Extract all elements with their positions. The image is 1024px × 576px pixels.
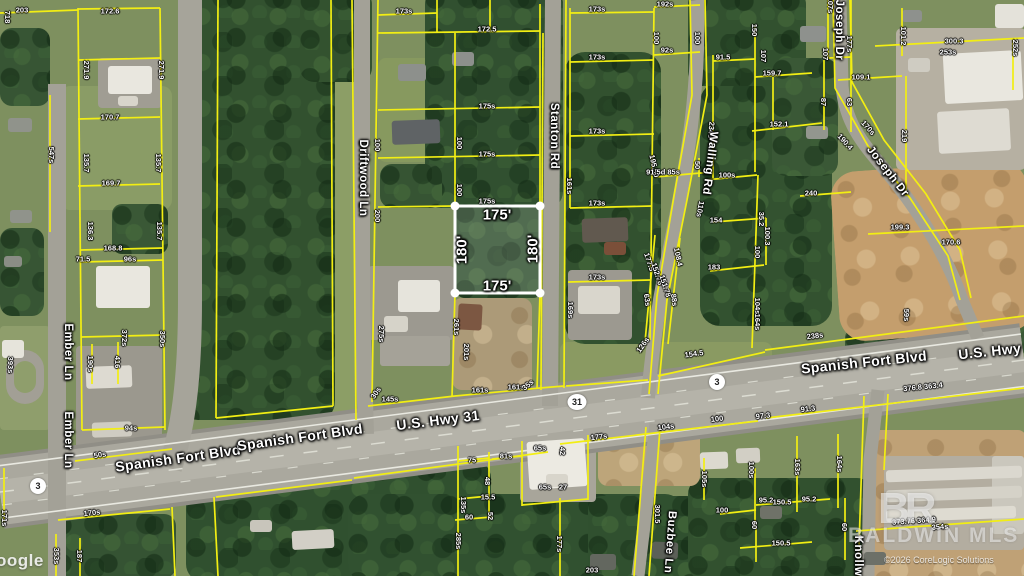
dimension-label: 100s [719,171,736,179]
dimension-label: 154 [710,216,723,224]
subject-parcel-dimension-label: 175' [483,279,512,294]
dimension-label: 173s [396,7,413,15]
dimension-label: 105s [700,471,708,488]
highway-shield: 3 [709,374,725,390]
dimension-label: 100s [747,462,755,479]
dimension-label: 159.7 [763,69,782,77]
dimension-label: 192s [657,0,674,8]
dimension-label: 15.5 [481,493,496,501]
dimension-label: 145s [382,395,399,403]
dimension-label: 104s [753,298,761,315]
dimension-label: 173s [589,199,606,207]
dimension-label: 177s [590,432,607,441]
dimension-label: 100 [753,246,761,259]
road-label: U.S. Hwy 31 [958,339,1024,362]
dimension-label: 100 [716,506,729,514]
highway-shield: 31 [568,394,587,410]
dimension-label: 547s [47,147,55,164]
road-label: Spanish Fort Blvd [236,421,363,452]
dimension-label: 100 [373,139,381,152]
dimension-label: 376.8 363.4 [903,381,943,393]
dimension-label: 350s [158,331,166,348]
dimension-label: 63 [845,98,853,106]
dimension-label: 203 [586,566,599,574]
dimension-label: 169.7 [102,179,121,187]
dimension-label: 353s [52,548,60,565]
dimension-label: 173s [589,273,606,281]
dimension-label: 150 [750,24,758,37]
dimension-label: 96s [124,255,137,263]
dimension-label: 91.3 [800,404,815,413]
dimension-label: 240 [805,189,818,197]
dimension-label: 172.5 [478,25,497,33]
dimension-label: 261s [452,319,460,336]
dimension-label: 63s [642,293,651,306]
dimension-label: 50s [93,450,106,459]
dimension-label: 81s [500,452,513,460]
dimension-label: 27 [559,483,567,491]
dimension-label: 300.3 [945,37,964,45]
dimension-label: 135s [459,497,467,514]
dimension-label: 271.9 [157,61,165,80]
dimension-label: 88s [669,293,678,306]
dimension-label: 91.5d 85s [646,168,680,176]
dimension-label: 187 [75,550,83,563]
labels-layer: 203718172.6271.9271.9170.7135.7135.7169.… [0,0,1024,576]
dimension-label: 65s [539,483,552,491]
dimension-label: 253s [940,48,957,56]
dimension-label: 164s [753,314,761,331]
subject-parcel-dimension-label: 180' [526,235,541,264]
dimension-label: 175s [479,197,496,205]
dimension-label: 100 [455,137,463,150]
dimension-label: 170.7 [101,113,120,121]
dimension-label: 136.3 [86,222,94,241]
dimension-label: 109.1 [852,73,871,81]
street-label: Stanton Rd [547,103,559,169]
dimension-label: 173s [589,53,606,61]
dimension-label: 126s [635,336,651,354]
dimension-label: 203 [16,6,29,14]
dimension-label: 171s [0,510,8,527]
dimension-label: 100 [710,415,723,424]
dimension-label: 150.5 [773,498,792,506]
dimension-label: 152.1 [770,120,789,128]
dimension-label: 169s [566,302,574,319]
dimension-label: 95.2 [802,495,817,503]
dimension-label: 718 [3,11,11,24]
dimension-label: 135.7 [155,222,163,241]
dimension-label: 177s [845,36,853,53]
dimension-label: 135.7 [82,154,90,173]
dimension-label: 94s [125,424,138,432]
dimension-label: 107 [821,48,829,61]
dimension-label: 154.5 [684,349,704,359]
dimension-label: 372s [120,330,128,347]
road-label: U.S. Hwy 31 [396,408,481,432]
street-label: Ember Ln [61,323,73,380]
dimension-label: 183 [708,263,721,271]
dimension-label: 175s [479,102,496,110]
dimension-label: 48 [483,477,491,485]
dimension-label: 87 [819,98,827,106]
street-label: Walling Rd [699,131,718,196]
dimension-label: 135.7 [154,154,162,173]
dimension-label: 108.4 [672,247,683,267]
dimension-label: 354s [931,523,948,532]
dimension-label: 75 [468,456,476,464]
dimension-label: 271.9 [82,61,90,80]
subject-parcel-dimension-label: 175' [483,208,512,223]
dimension-label: 170s [83,508,100,517]
dimension-label: 161s [472,386,489,394]
dimension-label: 285s [454,533,462,550]
dimension-label: 163s [793,459,801,476]
street-label: Driftwood Ln [356,140,368,217]
street-label: Buzbee Ln [661,510,677,573]
dimension-label: 172.6 [101,7,120,15]
dimension-label: 190s [86,356,94,373]
dimension-label: 100 [455,184,463,197]
dimension-label: 164s [835,456,843,473]
street-label: Joseph Dr [864,145,910,200]
dimension-label: 201s [462,344,470,361]
subject-parcel-dimension-label: 180' [455,236,470,265]
dimension-label: 59s [902,309,910,322]
street-label: Joseph Dr [832,0,844,60]
dimension-label: 65s [534,444,547,452]
dimension-label: 301.5 [653,505,661,524]
dimension-label: 416 [113,356,121,369]
dimension-label: 104s [657,422,674,431]
dimension-label: 200 [373,210,381,223]
dimension-label: 168.8 [104,244,123,252]
dimension-label: 150.5 [772,539,791,547]
dimension-label: 60 [750,521,758,529]
dimension-label: 101.2 [899,27,907,46]
dimension-label: 52 [486,512,494,520]
dimension-label: 170.6 [942,238,961,246]
dimension-label: 50 [693,161,701,169]
road-label: Spanish Fort Blvd [800,348,927,375]
dimension-label: 177s [555,536,563,553]
dimension-label: 170s [860,119,877,136]
dimension-label: 161s [565,178,573,195]
dimension-label: 110s [695,200,705,217]
dimension-label: 238s [806,331,823,340]
dimension-label: 91.5 [716,53,731,61]
dimension-label: 373.76 364.9 [892,516,936,527]
dimension-label: 35.2 [757,212,765,227]
dimension-label: 71.5 [76,255,91,263]
dimension-label: 393s [6,357,14,374]
dimension-label: 252s [1011,40,1019,57]
street-label: Ember Ln [61,411,73,468]
street-label: Knollw [851,536,863,576]
road-label: Spanish Fort Blvd [114,442,241,473]
dimension-label: 95.2 [759,496,774,504]
dimension-label: 275s [377,326,385,343]
dimension-label: 35s [521,378,535,392]
dimension-label: 173s [589,127,606,135]
map-canvas[interactable]: 203718172.6271.9271.9170.7135.7135.7169.… [0,0,1024,576]
highway-shield: 3 [30,478,46,494]
dimension-label: 100 [652,32,660,45]
dimension-label: 100 [693,32,701,45]
dimension-label: 175s [479,150,496,158]
dimension-label: 60 [840,523,848,531]
dimension-label: 42 [558,447,566,455]
dimension-label: 107 [759,50,767,63]
dimension-label: 199.3 [891,223,910,231]
dimension-label: 100.3 [763,227,771,246]
dimension-label: 190.4 [836,133,854,152]
dimension-label: 60 [465,513,473,521]
dimension-label: 173s [589,5,606,13]
dimension-label: 30s [369,386,382,401]
dimension-label: 92s [661,46,674,54]
dimension-label: 219 [900,130,908,143]
dimension-label: 97.3 [755,411,770,420]
